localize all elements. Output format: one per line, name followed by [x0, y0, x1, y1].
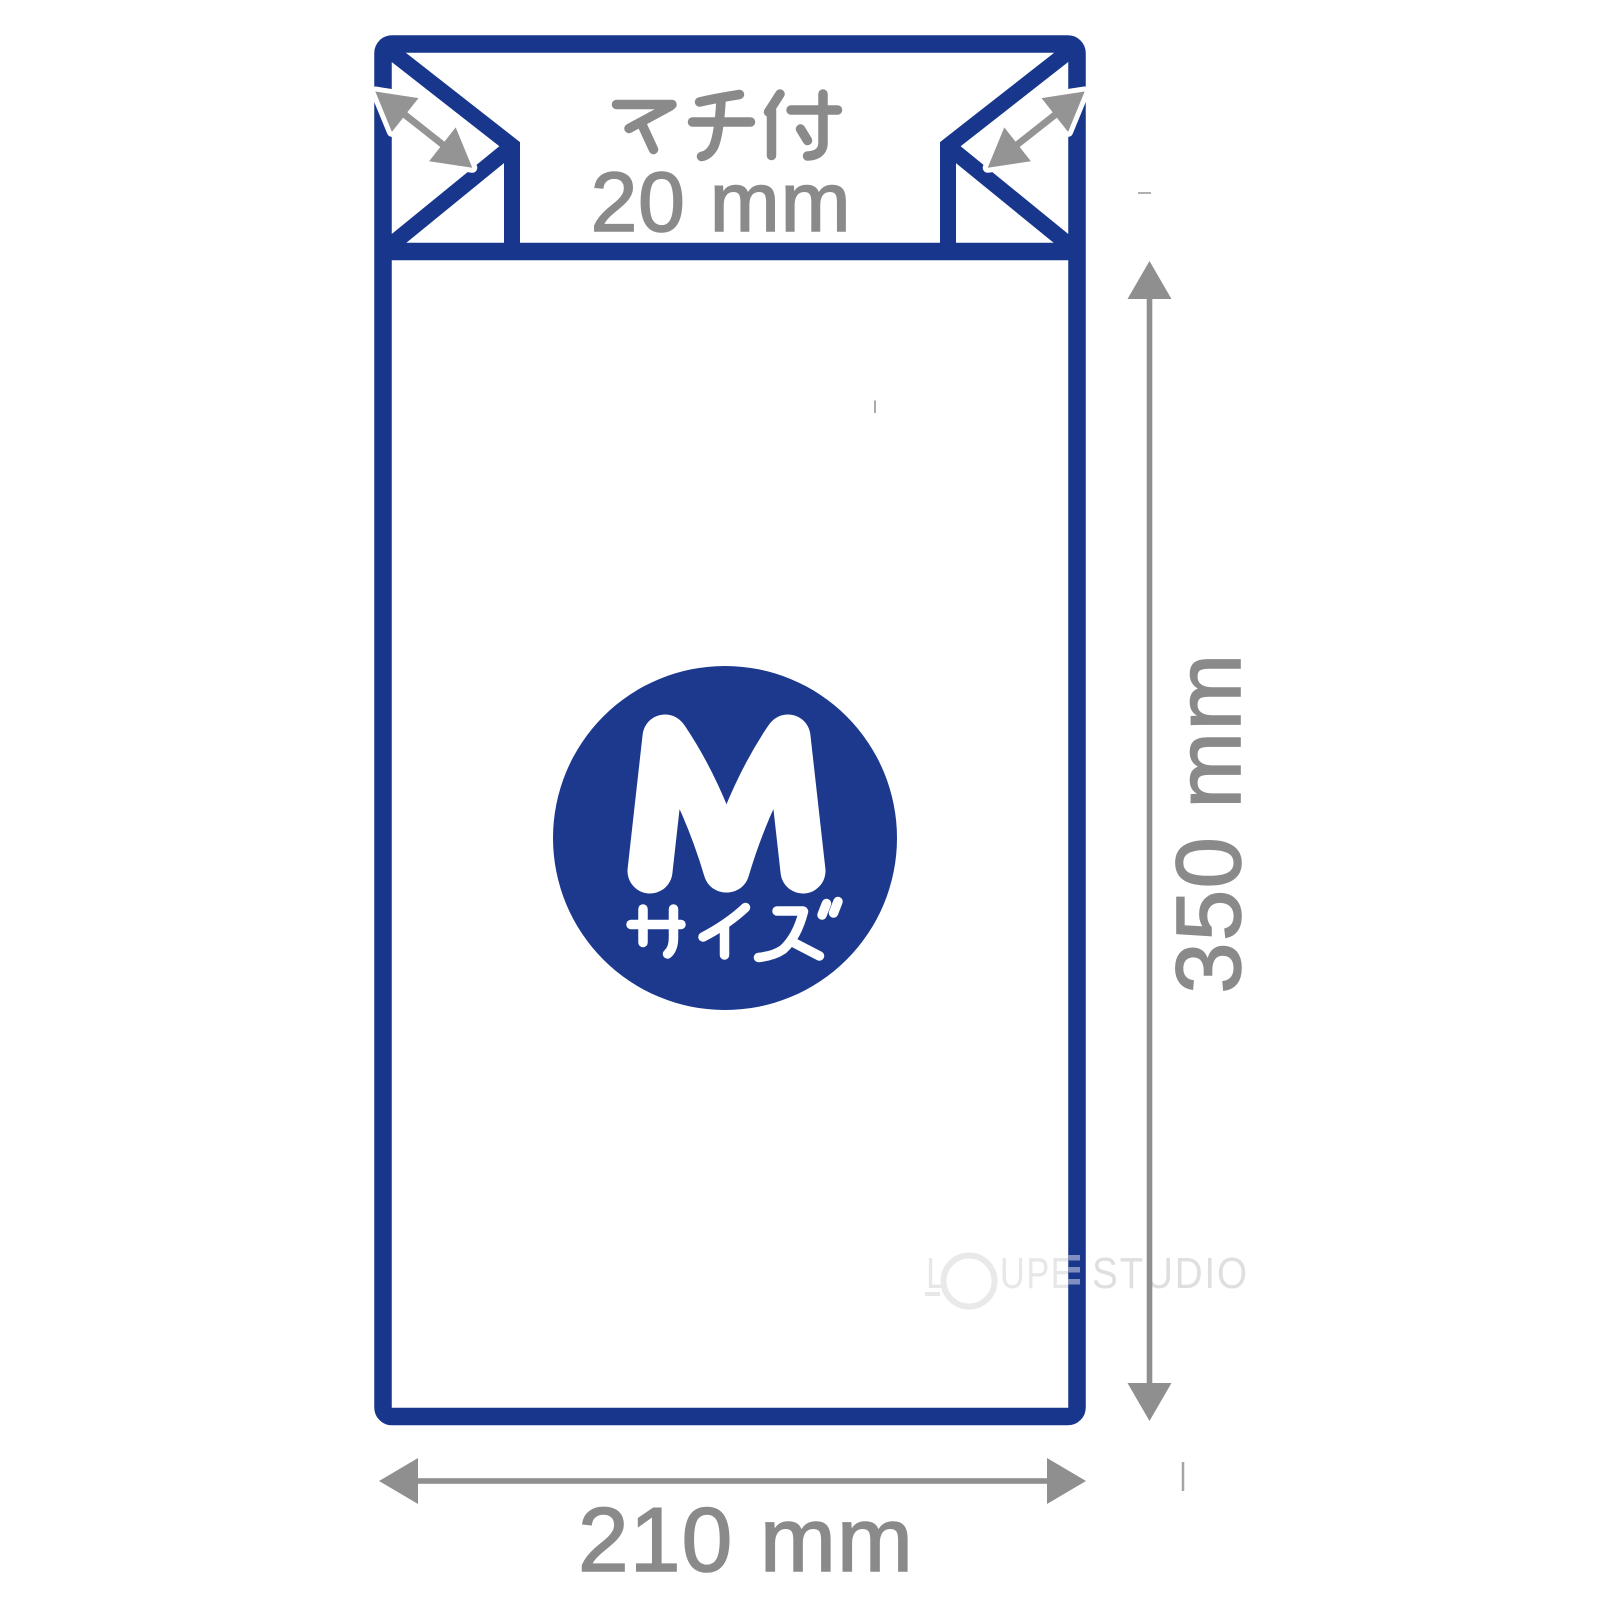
svg-text:20 mm: 20 mm — [591, 155, 852, 249]
svg-text:350 mm: 350 mm — [1158, 652, 1260, 993]
svg-text:STUDIO: STUDIO — [1092, 1248, 1249, 1298]
svg-text:UPE: UPE — [1000, 1249, 1075, 1298]
svg-text:210 mm: 210 mm — [578, 1490, 914, 1591]
